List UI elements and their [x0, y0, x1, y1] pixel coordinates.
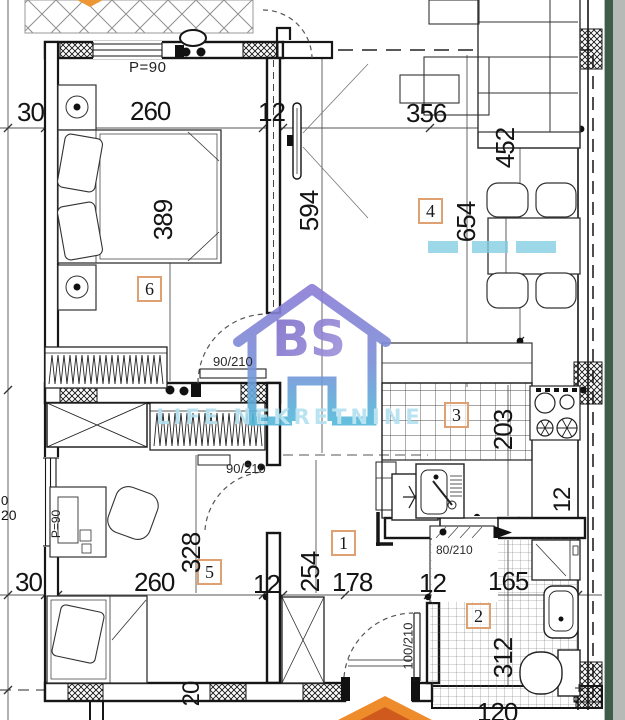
- dim-165: 165: [488, 568, 528, 594]
- dim-260-top: 260: [130, 98, 170, 124]
- dim-12-bottom-left: 12: [253, 571, 280, 597]
- watermark-company: LIFE NEKRETNINE: [156, 405, 424, 429]
- dim-30-top: 30: [17, 99, 44, 125]
- dim-120: 120: [477, 699, 517, 720]
- floor-plan-page: BS LIFE NEKRETNINE 1 2 3 4 5 6 P=90 30 2…: [0, 0, 625, 720]
- door-label-bedroom-second: 90/210: [226, 462, 266, 475]
- dim-254: 254: [297, 552, 323, 592]
- edge-fragment-0: 0: [1, 494, 8, 507]
- dim-178: 178: [332, 569, 372, 595]
- window-label-left: P=90: [50, 510, 62, 538]
- dim-203: 203: [490, 410, 516, 450]
- door-label-entrance: 100/210: [402, 623, 415, 670]
- dim-654: 654: [453, 202, 479, 242]
- dim-30-bottom: 30: [15, 569, 42, 595]
- dim-594: 594: [296, 191, 322, 231]
- dim-328: 328: [178, 533, 204, 573]
- edge-fragment-20: 20: [1, 508, 17, 522]
- furniture-bedroom-second: [47, 483, 324, 683]
- dim-20-bottom: 20: [180, 682, 204, 707]
- room-label-bathroom: 2: [466, 603, 491, 629]
- door-label-bedroom-main: 90/210: [213, 355, 253, 368]
- dim-389: 389: [150, 200, 176, 240]
- dim-12-top: 12: [258, 99, 285, 125]
- scan-edge: [604, 0, 625, 720]
- dim-312: 312: [490, 638, 516, 678]
- terrace-hatch: [25, 0, 253, 33]
- dim-452: 452: [492, 128, 518, 168]
- dim-12-kitchen: 12: [551, 488, 575, 513]
- window-label-top: P=90: [129, 60, 166, 75]
- dim-356: 356: [406, 100, 446, 126]
- room-label-hall: 1: [331, 530, 356, 556]
- room-label-kitchen: 3: [444, 402, 469, 428]
- floor-plan-drawing: BS LIFE NEKRETNINE: [0, 0, 625, 720]
- door-label-bathroom: 80/210: [436, 544, 473, 556]
- watermark-initials: BS: [272, 310, 346, 368]
- dim-12-bottom-right: 12: [419, 570, 446, 596]
- dim-260-bottom: 260: [134, 569, 174, 595]
- room-label-living: 4: [418, 198, 443, 224]
- room-label-bedroom-main: 6: [137, 276, 162, 302]
